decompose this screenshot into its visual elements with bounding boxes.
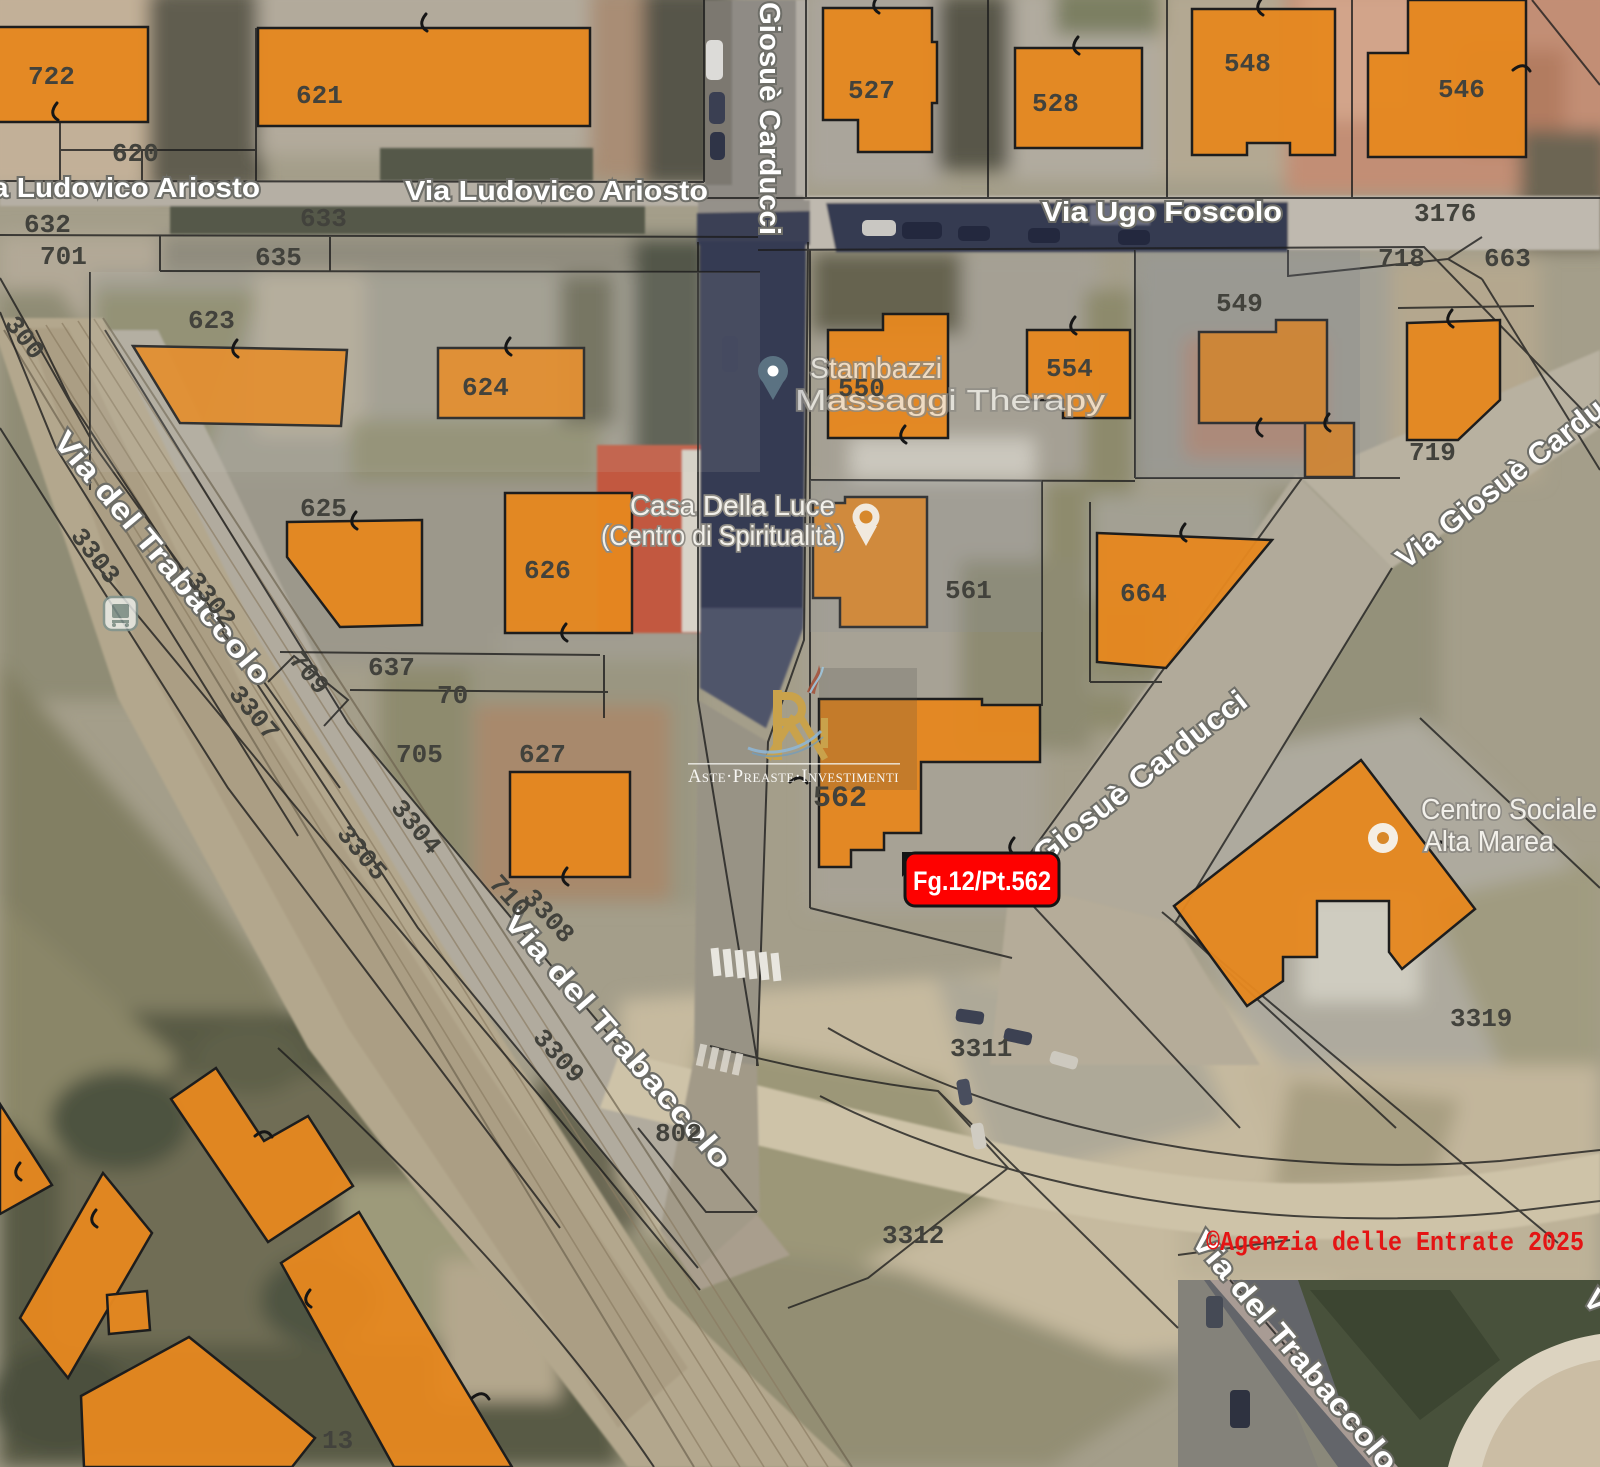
svg-text:Aste·Preaste·Investimenti: Aste·Preaste·Investimenti (688, 766, 899, 787)
svg-text:633: 633 (300, 204, 347, 234)
svg-text:626: 626 (524, 556, 571, 586)
svg-text:705: 705 (396, 740, 443, 770)
svg-text:624: 624 (462, 373, 509, 403)
svg-text:3312: 3312 (882, 1221, 944, 1251)
svg-text:3176: 3176 (1414, 199, 1476, 229)
svg-text:527: 527 (848, 76, 895, 106)
svg-text:722: 722 (28, 62, 75, 92)
svg-text:(Centro di Spiritualità): (Centro di Spiritualità) (601, 520, 845, 551)
svg-text:562: 562 (813, 782, 867, 816)
svg-text:635: 635 (255, 243, 302, 273)
svg-text:©Agenzia delle Entrate 2025: ©Agenzia delle Entrate 2025 (1206, 1229, 1584, 1259)
svg-text:632: 632 (24, 210, 71, 240)
svg-text:70: 70 (437, 681, 468, 711)
svg-text:Centro Sociale: Centro Sociale (1421, 794, 1597, 826)
svg-text:627: 627 (519, 740, 566, 770)
svg-text:701: 701 (40, 242, 87, 272)
svg-text:663: 663 (1484, 244, 1531, 274)
svg-text:Alta Marea: Alta Marea (1424, 826, 1555, 858)
svg-text:549: 549 (1216, 289, 1263, 319)
svg-text:621: 621 (296, 81, 343, 111)
svg-text:Via Ludovico Ariosto: Via Ludovico Ariosto (405, 175, 708, 206)
svg-text:548: 548 (1224, 49, 1271, 79)
svg-text:550: 550 (838, 374, 885, 404)
svg-text:664: 664 (1120, 579, 1167, 609)
svg-text:802: 802 (655, 1119, 702, 1149)
svg-text:554: 554 (1046, 354, 1093, 384)
svg-text:Giosuè Carducci: Giosuè Carducci (753, 2, 785, 235)
svg-text:a Ludovico Ariosto: a Ludovico Ariosto (0, 172, 260, 203)
svg-text:Via Ugo Foscolo: Via Ugo Foscolo (1042, 196, 1282, 227)
svg-text:561: 561 (945, 576, 992, 606)
svg-text:3319: 3319 (1450, 1004, 1512, 1034)
svg-text:Casa Della Luce: Casa Della Luce (630, 490, 835, 521)
svg-text:Fg.12/Pt.562: Fg.12/Pt.562 (913, 866, 1051, 896)
svg-text:620: 620 (112, 139, 159, 169)
svg-text:623: 623 (188, 306, 235, 336)
svg-text:546: 546 (1438, 75, 1485, 105)
svg-text:719: 719 (1409, 438, 1456, 468)
svg-text:3311: 3311 (950, 1034, 1012, 1064)
svg-text:718: 718 (1378, 244, 1425, 274)
svg-text:13: 13 (322, 1426, 353, 1456)
svg-text:625: 625 (300, 494, 347, 524)
svg-text:637: 637 (368, 653, 415, 683)
svg-text:528: 528 (1032, 89, 1079, 119)
